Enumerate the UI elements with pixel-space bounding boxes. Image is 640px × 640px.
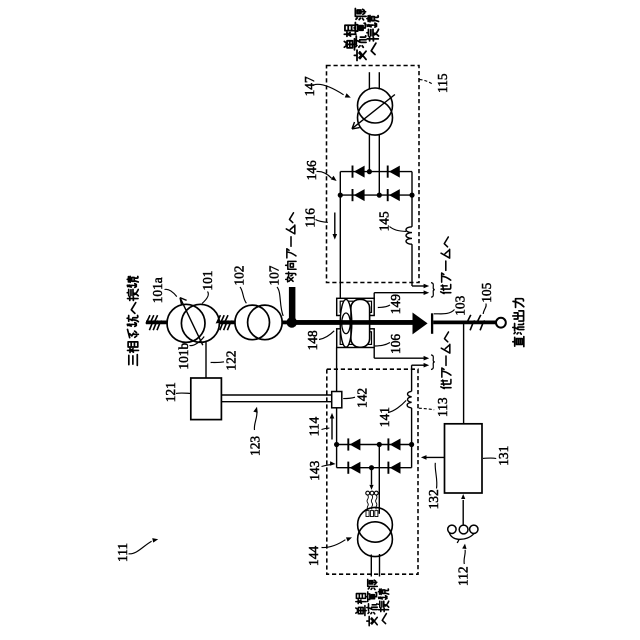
svg-text:131: 131 <box>496 446 511 466</box>
svg-text:121: 121 <box>163 382 178 402</box>
svg-text:143: 143 <box>307 460 322 480</box>
svg-text:149: 149 <box>388 294 403 314</box>
svg-text:141: 141 <box>377 407 392 427</box>
svg-text:112: 112 <box>456 566 471 586</box>
svg-text:103: 103 <box>453 295 468 315</box>
svg-text:123: 123 <box>247 436 262 456</box>
svg-text:148: 148 <box>305 330 320 350</box>
svg-text:116: 116 <box>302 208 317 228</box>
svg-text:106: 106 <box>388 334 403 354</box>
svg-text:101: 101 <box>200 271 215 291</box>
svg-text:147: 147 <box>302 76 317 96</box>
svg-text:114: 114 <box>307 417 322 437</box>
svg-text:122: 122 <box>223 351 238 371</box>
svg-text:101a: 101a <box>150 277 165 303</box>
svg-text:101b: 101b <box>176 343 191 370</box>
svg-text:115: 115 <box>435 73 450 93</box>
svg-text:146: 146 <box>304 160 319 180</box>
svg-text:144: 144 <box>306 546 321 566</box>
svg-text:102: 102 <box>231 266 246 286</box>
svg-text:107: 107 <box>267 265 282 285</box>
svg-text:105: 105 <box>479 282 494 302</box>
svg-text:113: 113 <box>435 397 450 417</box>
svg-text:132: 132 <box>426 489 441 509</box>
svg-text:142: 142 <box>354 388 369 408</box>
svg-text:111: 111 <box>115 543 130 562</box>
svg-text:145: 145 <box>376 211 391 231</box>
